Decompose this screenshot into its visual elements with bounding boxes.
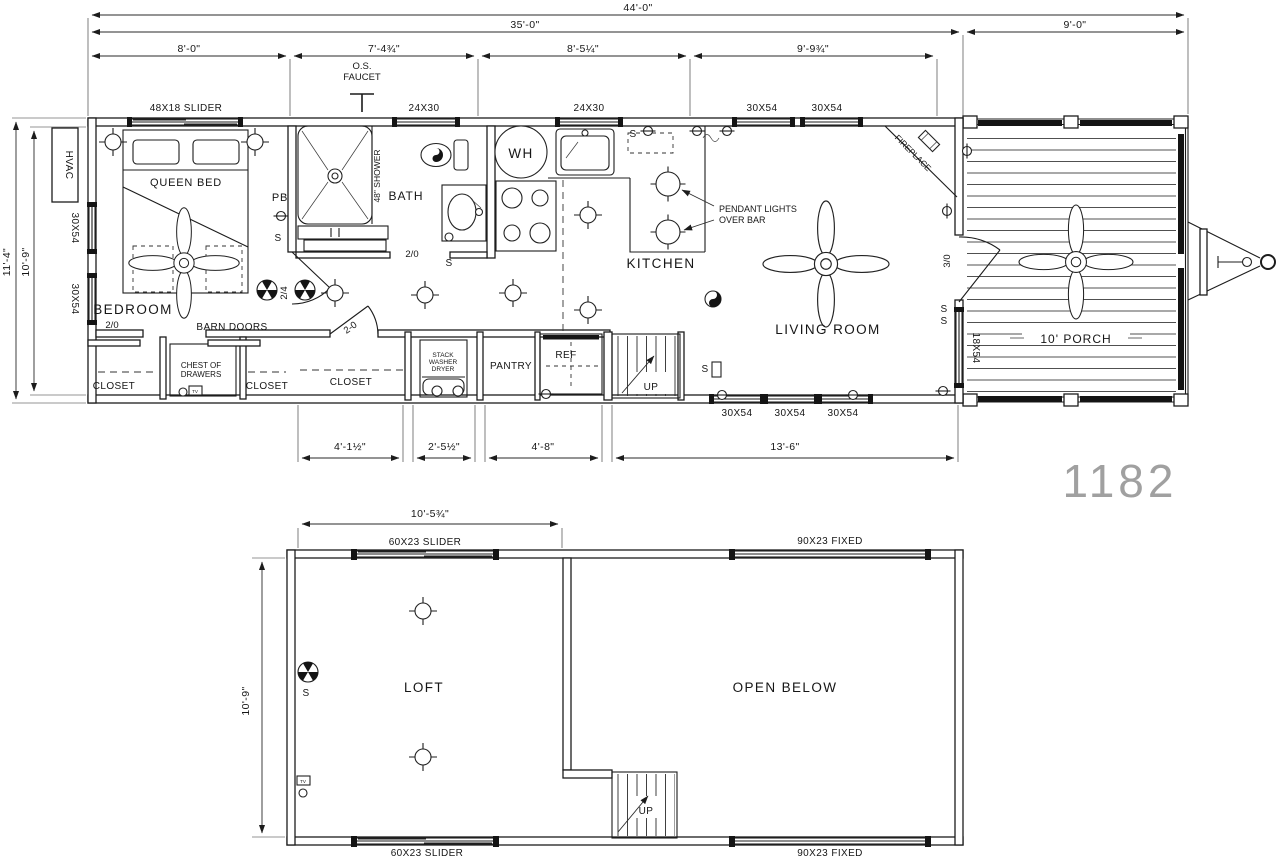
- label-window-left1: 30X54: [69, 213, 80, 244]
- label-porch: 10' PORCH: [1040, 332, 1111, 346]
- dim-washer-width: 2'-5½": [428, 441, 460, 453]
- switch-icon: S: [629, 129, 636, 140]
- label-barn-doors: BARN DOORS: [196, 322, 267, 333]
- label-window-top2: 30X54: [812, 103, 843, 114]
- outlet-icon: [641, 127, 656, 136]
- dim-seg-kitchen: 8'-5¼": [567, 43, 599, 55]
- dim-pantry-ref-width: 4'-8": [532, 441, 555, 453]
- ceiling-light-icon: [499, 279, 527, 307]
- dim-closet-width: 4'-1½": [334, 441, 366, 453]
- label-window-porch: 18X54: [970, 333, 981, 364]
- porch-rail: [978, 120, 1062, 126]
- label-wh: WH: [508, 146, 533, 161]
- porch-rail: [1178, 268, 1184, 390]
- dim-seg-bedroom: 8'-0": [178, 43, 201, 55]
- kitchen-sink: [556, 129, 614, 175]
- label-os-2: FAUCET: [343, 72, 381, 83]
- floor-plan-sheet: 44'-0" 35'-0" 9'-0" 8'-0" 7'-4¾" 8'-5¼" …: [0, 0, 1280, 857]
- pendant-light-icon: [651, 215, 686, 250]
- barn-door-panel: [208, 340, 260, 346]
- ceiling-fan-icon: [763, 201, 889, 327]
- label-open-below: OPEN BELOW: [733, 680, 838, 695]
- outlet-icon: [943, 204, 952, 219]
- label-door-closet: 2-0: [342, 320, 360, 337]
- toilet: [421, 140, 468, 170]
- model-number: 1182: [1063, 455, 1178, 507]
- window-18x54: [954, 307, 964, 388]
- vanity-sink: [442, 185, 486, 241]
- switch-icon: S: [940, 304, 947, 315]
- ceiling-light-icon: [574, 296, 602, 324]
- porch-rail: [1080, 396, 1172, 402]
- bedroom: [52, 128, 403, 396]
- window-24x30-kitchen: [555, 117, 623, 127]
- trailer-hitch: [1188, 222, 1275, 300]
- dim-height-interior: 10'-9": [20, 247, 32, 276]
- label-chest-2: DRAWERS: [181, 370, 222, 379]
- label-up-main: UP: [644, 382, 659, 393]
- label-pantry: PANTRY: [490, 361, 532, 372]
- junction-symbol: [705, 291, 721, 307]
- label-window-bottom1: 30X54: [722, 408, 753, 419]
- label-window-kitchen: 24X30: [574, 103, 605, 114]
- pillow: [133, 140, 179, 164]
- porch-post: [1174, 394, 1188, 406]
- label-living-room: LIVING ROOM: [775, 322, 880, 337]
- barn-door-panel: [88, 340, 140, 346]
- dim-loft-width: 10'-5¾": [411, 508, 449, 520]
- label-bath: BATH: [388, 189, 423, 203]
- switch-icon: S: [274, 233, 281, 244]
- window-30x54-top-1: [732, 117, 795, 127]
- dim-height-overall: 11'-4": [1, 248, 13, 276]
- refrigerator: [539, 334, 603, 399]
- label-bedroom: BEDROOM: [93, 302, 173, 317]
- ceiling-light-icon: [409, 597, 437, 625]
- label-chest-1: CHEST OF: [181, 361, 221, 370]
- smoke-detector-icon: [298, 662, 318, 682]
- tv-outlet-icon: [299, 789, 307, 797]
- window-30x54-top-2: [800, 117, 863, 127]
- porch-post: [1064, 116, 1078, 128]
- label-window-bottom2: 30X54: [775, 408, 806, 419]
- tv-outlet-icon: [179, 388, 187, 396]
- tv-label: TV: [300, 779, 307, 784]
- switch-icon: S: [940, 316, 947, 327]
- utility-row: [420, 334, 680, 399]
- label-ref: REF: [555, 350, 576, 361]
- label-pendant-1: PENDANT LIGHTS: [719, 204, 797, 214]
- thermostat: [712, 362, 721, 377]
- window-48x18-slider: [127, 117, 243, 127]
- label-pendant-2: OVER BAR: [719, 215, 766, 225]
- porch-post: [1174, 116, 1188, 128]
- ceiling-light-icon: [241, 128, 269, 156]
- porch-post: [963, 394, 977, 406]
- ceiling-light-icon: [411, 281, 439, 309]
- label-window-bath: 24X30: [409, 103, 440, 114]
- dim-cabin-width: 35'-0": [510, 19, 539, 31]
- dim-porch-width: 9'-0": [1064, 19, 1087, 31]
- label-loft-fixed-bottom: 90X23 FIXED: [797, 848, 863, 857]
- dim-seg-living: 9'-9¾": [797, 43, 829, 55]
- floor-plan-drawing: 44'-0" 35'-0" 9'-0" 8'-0" 7'-4¾" 8'-5¼" …: [0, 0, 1280, 857]
- label-loft: LOFT: [404, 680, 444, 695]
- label-stack-3: DRYER: [432, 366, 455, 373]
- stairs-loft: [612, 772, 677, 838]
- porch: [963, 116, 1188, 406]
- hall: [257, 252, 527, 334]
- outlet-icon: [720, 127, 735, 136]
- tv-label: TV: [192, 389, 199, 394]
- smoke-detector-icon: [295, 280, 315, 300]
- label-door-hall: 2/4: [279, 286, 290, 299]
- ceiling-light-icon: [409, 743, 437, 771]
- porch-post: [963, 116, 977, 128]
- loft-plan: [252, 524, 963, 847]
- switch-icon: S: [302, 688, 309, 699]
- tv-icon: [918, 130, 939, 151]
- pendant-light-icon: [651, 167, 686, 202]
- porch-rail: [1178, 134, 1184, 254]
- smoke-detector-icon: [257, 280, 277, 300]
- switch-icon: S: [445, 258, 452, 269]
- label-loft-slider-bottom: 60X23 SLIDER: [391, 848, 464, 857]
- label-closet-1: CLOSET: [93, 381, 135, 392]
- label-loft-slider-top: 60X23 SLIDER: [389, 537, 462, 548]
- label-stack-1: STACK: [432, 352, 454, 359]
- switch-icon: S: [701, 364, 708, 375]
- outlet-icon: [936, 387, 951, 396]
- label-os-1: O.S.: [352, 61, 371, 72]
- porch-rail: [1080, 120, 1172, 126]
- label-up-loft: UP: [639, 806, 654, 817]
- os-faucet-icon: [350, 94, 374, 112]
- label-door-bedroom-closet: 2/0: [105, 320, 118, 331]
- label-hvac: HVAC: [63, 151, 74, 180]
- ceiling-light-icon: [574, 201, 602, 229]
- window-30x54-left-2: [87, 273, 97, 325]
- window-30x54-bottom-3: [817, 394, 873, 404]
- label-loft-fixed-top: 90X23 FIXED: [797, 536, 863, 547]
- label-window-bedroom: 48X18 SLIDER: [150, 103, 223, 114]
- label-shower: 48" SHOWER: [372, 149, 382, 202]
- label-window-left2: 30X54: [69, 284, 80, 315]
- dim-loft-depth: 10'-9": [240, 686, 252, 715]
- window-30x54-bottom-2: [763, 394, 819, 404]
- label-queen-bed: QUEEN BED: [150, 177, 222, 189]
- label-window-top1: 30X54: [747, 103, 778, 114]
- pillow: [193, 140, 239, 164]
- window-24x30-bath: [392, 117, 460, 127]
- label-window-bottom3: 30X54: [828, 408, 859, 419]
- porch-post: [1064, 394, 1078, 406]
- label-closet-2: CLOSET: [246, 381, 288, 392]
- porch-rail: [978, 396, 1062, 402]
- outlet-icon: [690, 127, 705, 136]
- dim-seg-bath: 7'-4¾": [368, 43, 400, 55]
- label-door-porch: 3/0: [942, 254, 953, 267]
- outlet-icon: [274, 212, 289, 221]
- window-30x54-left-1: [87, 202, 97, 254]
- label-stack-2: WASHER: [429, 359, 458, 366]
- range-stove: [496, 181, 556, 251]
- dim-overall-width: 44'-0": [623, 2, 652, 14]
- label-kitchen: KITCHEN: [626, 256, 695, 271]
- label-closet-3: CLOSET: [330, 377, 372, 388]
- dim-living-bottom: 13'-6": [770, 441, 799, 453]
- label-pb: PB: [272, 192, 288, 204]
- label-door-bath: 2/0: [405, 249, 418, 260]
